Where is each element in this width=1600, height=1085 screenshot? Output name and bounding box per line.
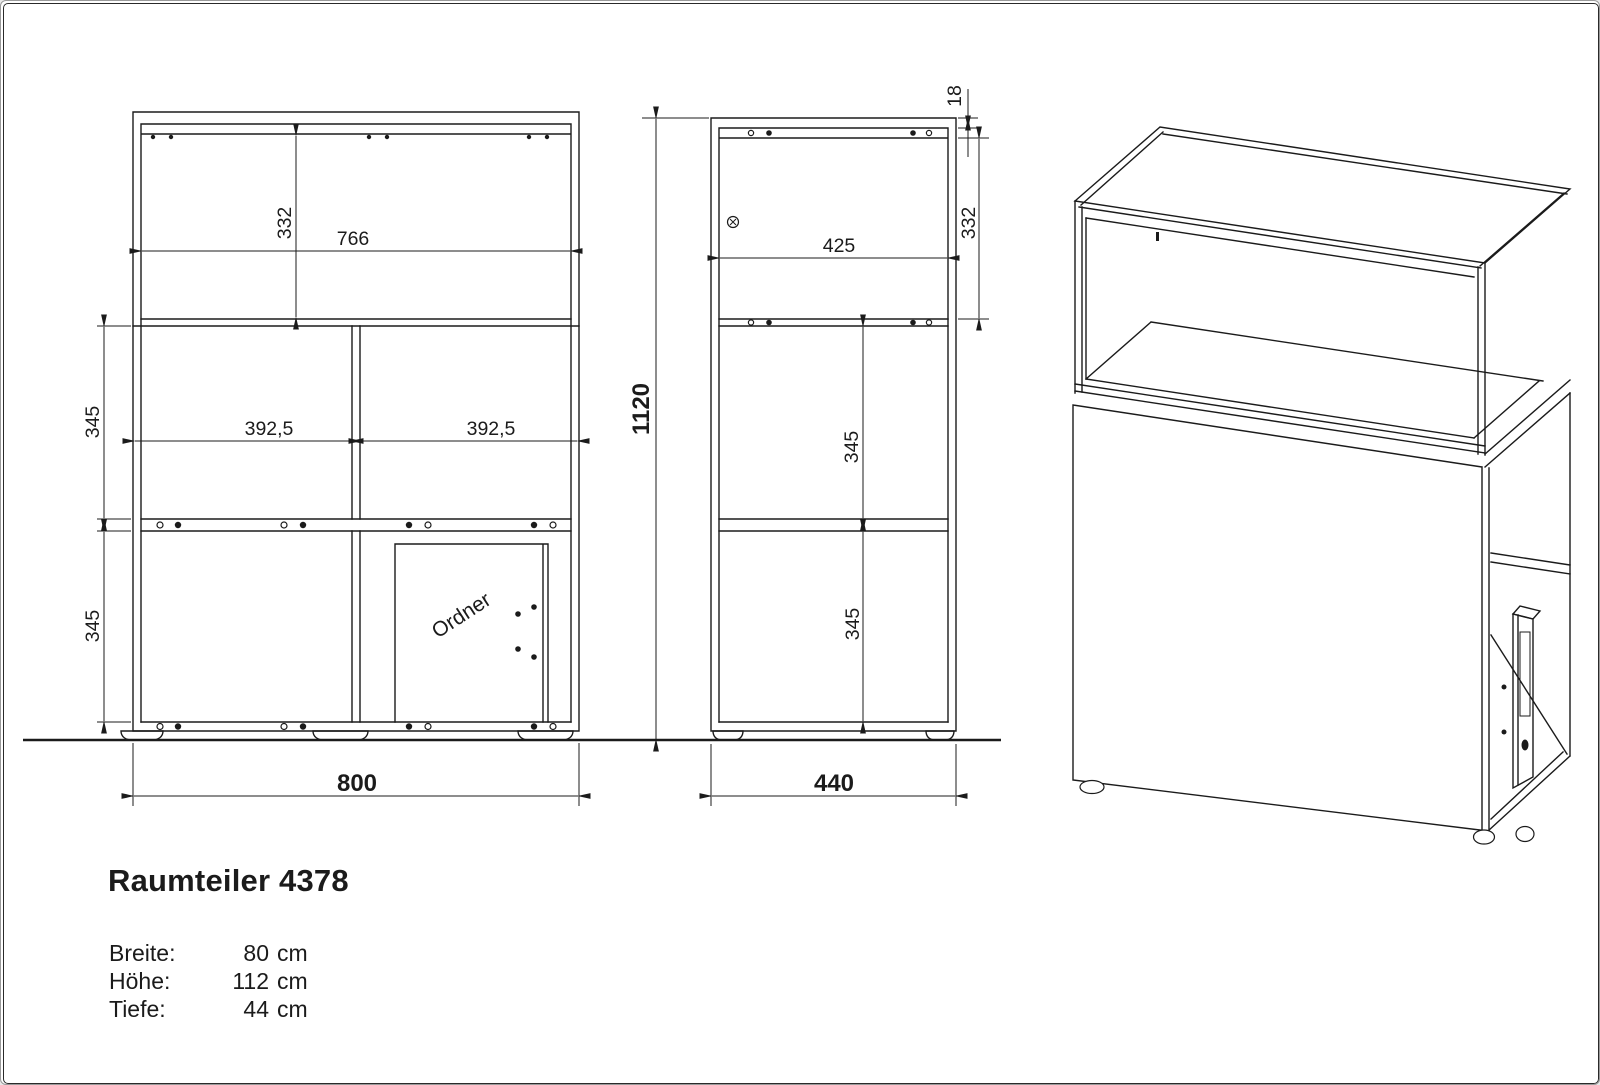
spec-width-unit: cm bbox=[277, 939, 308, 967]
binder-front: Ordner bbox=[395, 544, 548, 722]
spec-row-width: Breite: 80 cm bbox=[109, 939, 308, 967]
dim-overall-height: 1120 bbox=[628, 383, 655, 435]
technical-drawing-page: Ordner 766 332 bbox=[0, 0, 1600, 1085]
furniture-dimension-drawing: Ordner 766 332 bbox=[1, 1, 1600, 1085]
side-view: 1120 18 332 425 345 345 440 bbox=[628, 85, 989, 806]
dim-overall-width: 800 bbox=[337, 770, 377, 797]
dim-side-mid-height: 345 bbox=[841, 431, 863, 464]
top-band-holes bbox=[151, 135, 549, 139]
spec-height-unit: cm bbox=[277, 967, 308, 995]
front-dimensions: 766 332 392,5 392,5 345 345 800 bbox=[82, 136, 579, 806]
dim-cell-right: 392,5 bbox=[467, 418, 516, 440]
side-holes bbox=[748, 130, 931, 325]
isometric-view bbox=[1073, 127, 1570, 844]
middle-shelf-holes bbox=[157, 522, 556, 528]
dim-mid-height: 345 bbox=[82, 406, 104, 439]
dim-inner-width: 766 bbox=[337, 228, 370, 250]
spec-width-value: 80 bbox=[221, 939, 269, 967]
side-dimensions: 1120 18 332 425 345 345 440 bbox=[628, 85, 989, 806]
spec-width-label: Breite: bbox=[109, 939, 221, 967]
dim-top-thickness: 18 bbox=[944, 85, 966, 107]
shelf-pin-mark bbox=[1156, 232, 1159, 241]
title-block: Raumteiler 4378 bbox=[108, 863, 349, 899]
dim-lower-height: 345 bbox=[82, 610, 104, 643]
dim-cell-left: 392,5 bbox=[245, 418, 294, 440]
spec-depth-label: Tiefe: bbox=[109, 995, 221, 1023]
binder-isometric bbox=[1513, 606, 1540, 788]
isometric-feet bbox=[1080, 781, 1534, 845]
spec-table: Breite: 80 cm Höhe: 112 cm Tiefe: 44 cm bbox=[109, 939, 308, 1023]
spec-height-label: Höhe: bbox=[109, 967, 221, 995]
dim-upper-height: 332 bbox=[274, 207, 296, 240]
bottom-panel-holes bbox=[157, 723, 556, 729]
spec-depth-value: 44 bbox=[221, 995, 269, 1023]
binder-label: Ordner bbox=[428, 588, 495, 643]
spec-row-height: Höhe: 112 cm bbox=[109, 967, 308, 995]
dim-side-lower-height: 345 bbox=[842, 608, 864, 641]
spec-depth-unit: cm bbox=[277, 995, 308, 1023]
dim-inner-depth: 425 bbox=[823, 235, 856, 257]
dim-overall-depth: 440 bbox=[814, 770, 854, 797]
screw-icon bbox=[728, 217, 739, 228]
spec-row-depth: Tiefe: 44 cm bbox=[109, 995, 308, 1023]
spec-height-value: 112 bbox=[221, 967, 269, 995]
dim-side-upper-height: 332 bbox=[958, 207, 980, 240]
front-view: Ordner 766 332 bbox=[82, 112, 579, 806]
drawing-title: Raumteiler 4378 bbox=[108, 863, 349, 899]
side-feet bbox=[713, 731, 954, 740]
front-feet bbox=[121, 731, 573, 740]
